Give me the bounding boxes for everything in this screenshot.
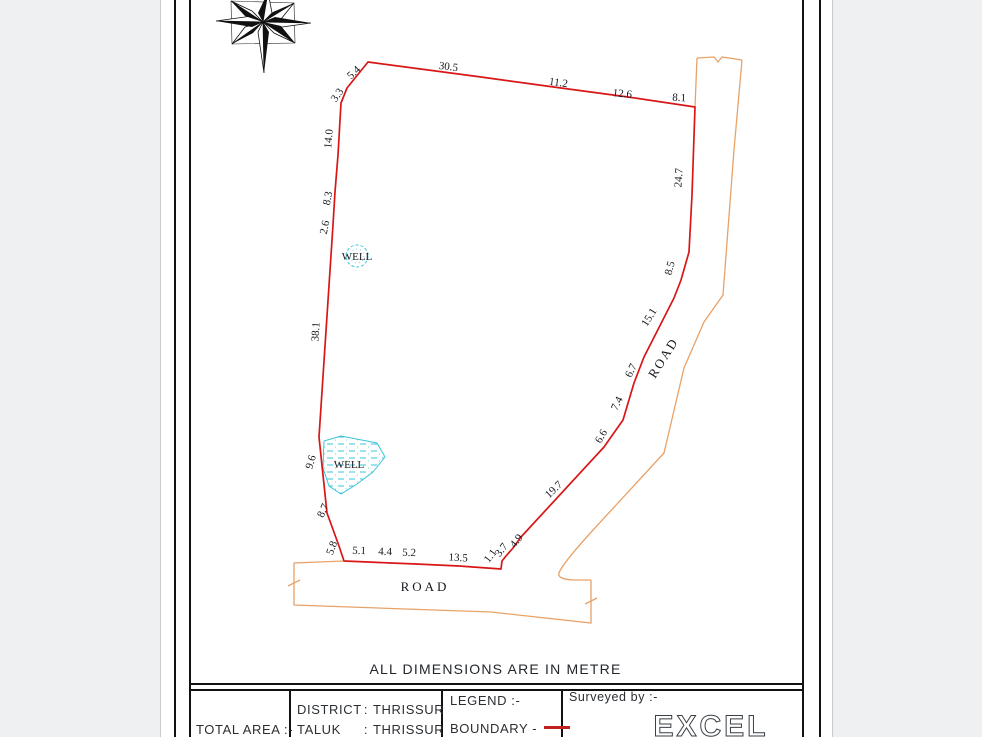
- compass-rose-icon: [216, 0, 311, 73]
- dimension-label: 12.6: [612, 87, 633, 101]
- well-label: WELL: [334, 459, 365, 471]
- dimension-label: 9.6: [303, 453, 319, 470]
- district-row: DISTRICT:THRISSUR: [297, 702, 444, 717]
- taluk-value: THRISSUR: [373, 722, 444, 737]
- dimension-label: 4.4: [378, 546, 393, 558]
- dimension-label: 5.2: [402, 547, 416, 559]
- taluk-colon: :: [359, 722, 373, 737]
- dimension-label: 3.3: [329, 86, 347, 105]
- dimension-label: 14.0: [322, 128, 336, 149]
- boundary-line-swatch: [544, 726, 570, 729]
- dimension-labels: 3.3 5.4 30.5 11.2 12.6 8.1 24.7 8.5 15.1…: [303, 60, 686, 565]
- road-label-right: ROAD: [645, 335, 681, 381]
- well-label: WELL: [342, 251, 373, 263]
- surveyed-by-label: Surveyed by :-: [569, 690, 658, 704]
- dimension-label: 30.5: [438, 60, 459, 74]
- dimension-label: 11.2: [548, 76, 568, 91]
- district-colon: :: [359, 702, 373, 717]
- legend-label: LEGEND :-: [450, 693, 520, 708]
- dimension-label: 8.3: [321, 190, 336, 206]
- taluk-label: TALUK: [297, 722, 359, 737]
- dimension-label: 19.7: [543, 479, 566, 501]
- dimension-label: 8.5: [663, 260, 678, 277]
- dimension-label: 8.1: [672, 92, 686, 105]
- boundary-label: BOUNDARY -: [450, 721, 537, 736]
- dimension-label: 38.1: [309, 322, 322, 342]
- plot-map: 3.3 5.4 30.5 11.2 12.6 8.1 24.7 8.5 15.1…: [161, 0, 832, 737]
- survey-plan-sheet: 3.3 5.4 30.5 11.2 12.6 8.1 24.7 8.5 15.1…: [160, 0, 833, 737]
- taluk-row: TALUK:THRISSUR: [297, 722, 444, 737]
- dimension-label: 8.7: [315, 502, 332, 520]
- dimension-label: 7.4: [609, 394, 626, 412]
- dimension-label: 15.1: [639, 306, 659, 329]
- surveyor-logo-text: EXCEL: [653, 710, 768, 737]
- dimension-label: 13.5: [448, 552, 468, 565]
- road-label-bottom: ROAD: [401, 579, 450, 594]
- dimension-label: 5.1: [352, 545, 366, 557]
- survey-drawing-viewport: 3.3 5.4 30.5 11.2 12.6 8.1 24.7 8.5 15.1…: [0, 0, 982, 737]
- dimension-label: 6.7: [623, 361, 640, 379]
- dimension-label: 24.7: [672, 167, 685, 188]
- legend-boundary-row: BOUNDARY -: [450, 721, 570, 736]
- surveyor-logo: EXCEL: [616, 710, 806, 737]
- plot-boundary: [319, 62, 695, 569]
- district-value: THRISSUR: [373, 702, 444, 717]
- total-area-label: TOTAL AREA :-: [196, 722, 293, 737]
- title-block-top-line: [189, 689, 804, 691]
- dimension-label: 2.6: [318, 219, 333, 235]
- dimension-label: 5.4: [345, 63, 364, 81]
- district-label: DISTRICT: [297, 702, 359, 717]
- dimensions-note: ALL DIMENSIONS ARE IN METRE: [189, 661, 802, 677]
